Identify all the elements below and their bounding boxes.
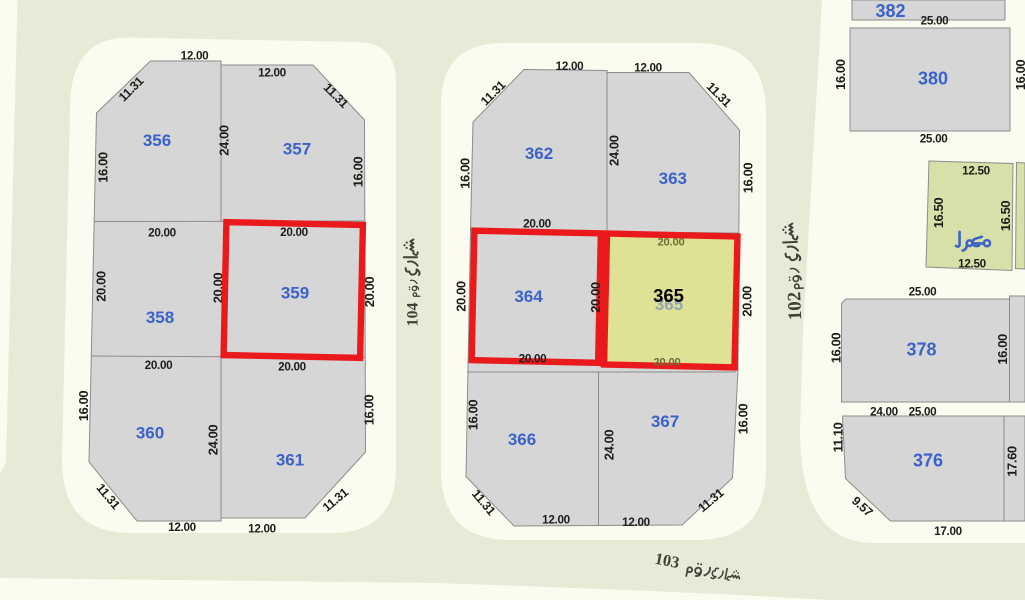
svg-text:20.00: 20.00 xyxy=(658,237,685,249)
svg-text:16.50: 16.50 xyxy=(998,201,1013,232)
svg-text:357: 357 xyxy=(283,140,311,159)
svg-text:20.00: 20.00 xyxy=(148,227,177,240)
svg-text:20.00: 20.00 xyxy=(654,357,681,369)
svg-text:16.00: 16.00 xyxy=(458,158,473,189)
svg-text:20.00: 20.00 xyxy=(523,218,552,231)
svg-text:25.00: 25.00 xyxy=(909,286,938,299)
svg-text:25.00: 25.00 xyxy=(921,15,950,28)
svg-text:12.00: 12.00 xyxy=(634,62,663,75)
svg-text:358: 358 xyxy=(146,308,174,327)
svg-text:359: 359 xyxy=(281,284,309,303)
svg-text:16.00: 16.00 xyxy=(1013,60,1025,91)
svg-text:20.00: 20.00 xyxy=(94,271,109,302)
svg-text:366: 366 xyxy=(508,430,536,449)
svg-text:378: 378 xyxy=(906,340,936,360)
svg-text:16.00: 16.00 xyxy=(466,400,481,431)
svg-text:20.00: 20.00 xyxy=(740,286,755,317)
svg-text:12.00: 12.00 xyxy=(542,514,571,527)
svg-text:360: 360 xyxy=(136,424,164,443)
svg-text:25.00: 25.00 xyxy=(920,133,949,146)
svg-text:24.00: 24.00 xyxy=(217,125,232,156)
svg-text:25.00: 25.00 xyxy=(909,406,938,419)
svg-text:12.00: 12.00 xyxy=(168,521,197,534)
svg-text:17.60: 17.60 xyxy=(1005,446,1020,477)
svg-text:12.00: 12.00 xyxy=(258,67,287,80)
svg-text:12.50: 12.50 xyxy=(958,258,987,271)
svg-text:20.00: 20.00 xyxy=(519,353,548,366)
svg-text:102: 102 xyxy=(784,291,806,320)
svg-text:12.00: 12.00 xyxy=(181,50,210,63)
svg-text:12.00: 12.00 xyxy=(556,60,585,73)
svg-text:16.00: 16.00 xyxy=(995,334,1010,365)
svg-text:16.00: 16.00 xyxy=(833,59,848,90)
svg-text:16.00: 16.00 xyxy=(741,163,756,194)
svg-text:16.00: 16.00 xyxy=(362,395,377,426)
svg-text:17.00: 17.00 xyxy=(934,525,963,538)
svg-text:24.00: 24.00 xyxy=(602,430,617,461)
svg-text:365: 365 xyxy=(653,285,684,306)
svg-text:16.00: 16.00 xyxy=(829,333,844,364)
svg-text:380: 380 xyxy=(918,69,948,89)
svg-text:16.00: 16.00 xyxy=(96,152,111,183)
svg-text:367: 367 xyxy=(651,412,679,431)
svg-text:363: 363 xyxy=(659,169,687,188)
svg-text:356: 356 xyxy=(143,131,171,150)
svg-text:364: 364 xyxy=(514,287,543,306)
svg-text:16.50: 16.50 xyxy=(931,198,946,229)
svg-text:20.00: 20.00 xyxy=(280,226,309,239)
svg-text:361: 361 xyxy=(276,451,304,470)
svg-text:20.00: 20.00 xyxy=(145,359,174,372)
svg-text:24.00: 24.00 xyxy=(206,425,221,456)
svg-text:11.10: 11.10 xyxy=(831,422,846,452)
svg-text:24.00: 24.00 xyxy=(870,406,899,419)
svg-text:24.00: 24.00 xyxy=(607,135,622,166)
svg-text:382: 382 xyxy=(875,1,905,21)
svg-text:16.00: 16.00 xyxy=(351,157,366,188)
svg-text:16.00: 16.00 xyxy=(736,404,751,435)
svg-text:20.00: 20.00 xyxy=(454,281,469,312)
svg-text:104: 104 xyxy=(405,303,422,327)
svg-text:20.00: 20.00 xyxy=(588,282,603,313)
svg-text:16.00: 16.00 xyxy=(76,391,91,422)
svg-text:12.50: 12.50 xyxy=(962,164,991,177)
svg-text:20.00: 20.00 xyxy=(278,361,307,374)
svg-text:362: 362 xyxy=(525,144,553,163)
svg-text:12.00: 12.00 xyxy=(622,516,651,529)
svg-text:12.00: 12.00 xyxy=(248,523,277,536)
svg-text:376: 376 xyxy=(913,451,943,471)
